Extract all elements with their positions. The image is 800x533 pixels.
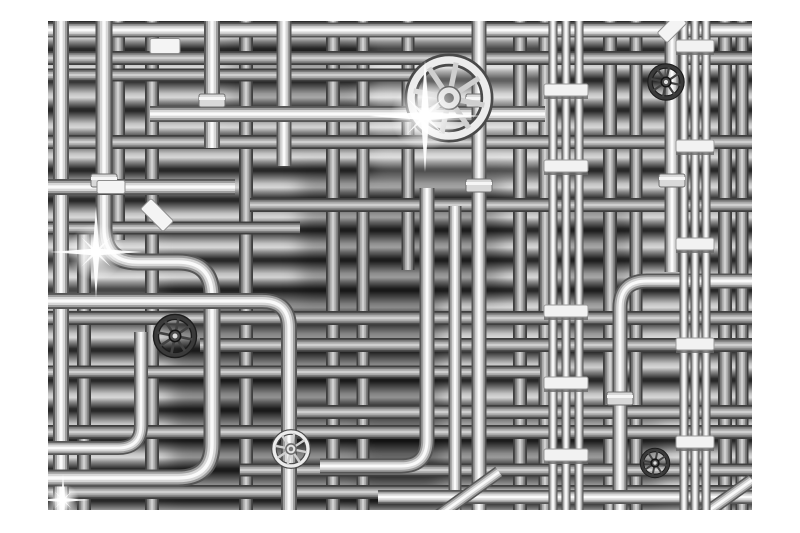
product-photo <box>0 0 800 533</box>
pipe-maze-illustration <box>0 0 800 533</box>
